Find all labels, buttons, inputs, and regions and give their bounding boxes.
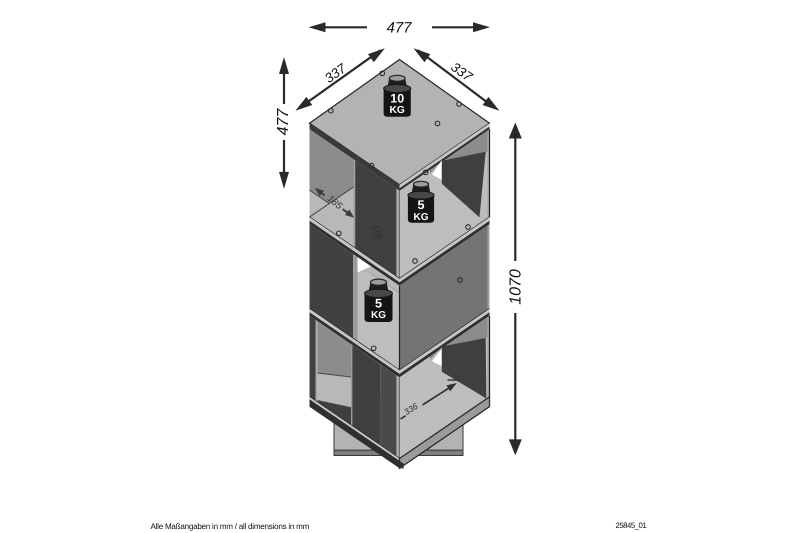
svg-text:328: 328 bbox=[325, 266, 336, 281]
svg-text:Alle Maßangaben in mm / all di: Alle Maßangaben in mm / all dimensions i… bbox=[151, 522, 310, 531]
svg-text:477: 477 bbox=[386, 20, 412, 37]
svg-text:5: 5 bbox=[417, 198, 424, 212]
svg-text:KG: KG bbox=[390, 105, 405, 116]
svg-text:1070: 1070 bbox=[507, 269, 524, 305]
svg-text:KG: KG bbox=[371, 310, 386, 321]
svg-text:5: 5 bbox=[375, 296, 382, 310]
svg-text:10: 10 bbox=[390, 91, 404, 105]
svg-text:KG: KG bbox=[414, 212, 429, 223]
svg-text:477: 477 bbox=[275, 108, 292, 136]
svg-text:25845_01: 25845_01 bbox=[616, 521, 647, 530]
